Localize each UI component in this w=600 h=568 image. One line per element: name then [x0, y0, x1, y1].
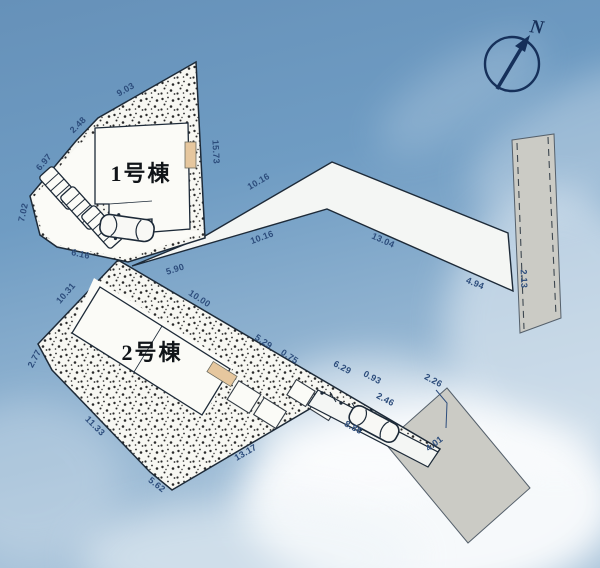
boundary-point — [339, 401, 342, 404]
porch-1 — [185, 142, 196, 168]
site-plan-frame: 1号棟 — [0, 0, 600, 568]
road-side-strip — [512, 134, 561, 333]
road-side-strip-surface — [512, 134, 561, 333]
site-plan-svg: 1号棟 — [0, 0, 600, 568]
building-2-label: 2号棟 — [121, 340, 182, 365]
building-1-label: 1号棟 — [110, 161, 171, 186]
dim-label-road-side: 2.13 — [519, 269, 530, 288]
boundary-point — [320, 391, 323, 394]
dim-label-p1-right: 15.73 — [210, 140, 221, 165]
